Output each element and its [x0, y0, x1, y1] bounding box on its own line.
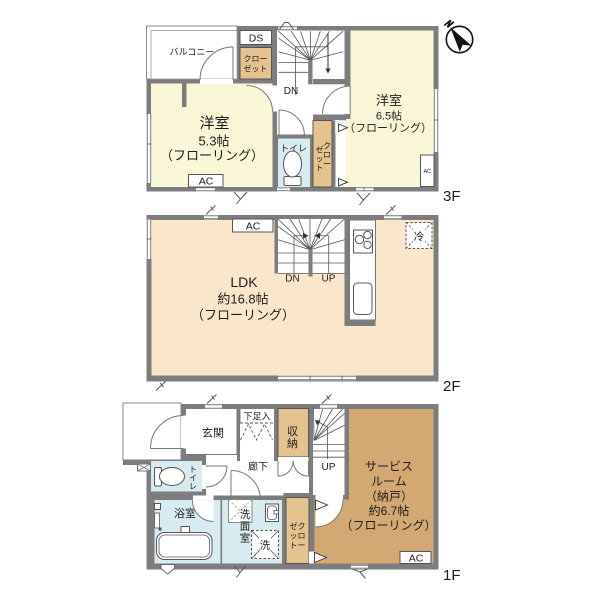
svg-text:ー: ー	[323, 160, 331, 169]
svg-text:AC: AC	[423, 169, 431, 175]
svg-text:バルコニー: バルコニー	[170, 47, 215, 57]
svg-text:ク: ク	[323, 142, 331, 151]
svg-text:AC: AC	[199, 176, 214, 188]
svg-text:ゼ: ゼ	[316, 145, 324, 155]
svg-text:収: 収	[287, 425, 298, 438]
svg-text:冷: 冷	[414, 230, 425, 243]
svg-text:玄関: 玄関	[202, 426, 224, 440]
svg-text:下足入: 下足入	[243, 412, 270, 422]
svg-text:6.5帖: 6.5帖	[376, 110, 402, 123]
svg-text:DN: DN	[284, 86, 298, 97]
svg-text:洗: 洗	[260, 540, 271, 552]
svg-text:DN: DN	[285, 274, 299, 285]
svg-text:AC: AC	[246, 221, 261, 233]
svg-text:LDK: LDK	[230, 274, 258, 290]
svg-text:洗: 洗	[240, 509, 251, 521]
svg-text:ト: ト	[290, 541, 298, 550]
svg-text:廊下: 廊下	[248, 460, 268, 473]
svg-text:1F: 1F	[443, 567, 461, 584]
svg-text:約6.7帖: 約6.7帖	[369, 503, 410, 518]
svg-text:ゼット: ゼット	[244, 64, 268, 74]
svg-text:クロー: クロー	[244, 55, 268, 64]
svg-text:（フローリング）: （フローリング）	[160, 148, 264, 163]
svg-text:（フローリング）: （フローリング）	[340, 519, 436, 533]
svg-text:（フローリング）: （フローリング）	[344, 121, 432, 135]
svg-text:納: 納	[287, 437, 298, 450]
svg-text:ロ: ロ	[298, 532, 306, 541]
svg-text:3F: 3F	[443, 188, 461, 205]
svg-text:UP: UP	[322, 274, 336, 285]
svg-text:室: 室	[240, 532, 251, 545]
svg-text:約16.8帖: 約16.8帖	[217, 292, 268, 307]
svg-text:UP: UP	[322, 462, 336, 473]
svg-text:2F: 2F	[443, 378, 461, 395]
svg-text:ク: ク	[298, 522, 306, 531]
svg-text:ッ: ッ	[290, 532, 298, 541]
svg-text:AC: AC	[409, 553, 424, 565]
svg-text:浴室: 浴室	[174, 506, 196, 520]
svg-text:ッ: ッ	[316, 155, 324, 164]
svg-text:面: 面	[240, 521, 251, 533]
svg-text:DS: DS	[249, 33, 264, 45]
svg-text:洋室: 洋室	[199, 115, 229, 132]
svg-text:ルーム: ルーム	[371, 475, 407, 489]
svg-text:サービス: サービス	[365, 460, 413, 474]
svg-text:（フローリング）: （フローリング）	[191, 308, 295, 323]
svg-text:ト: ト	[316, 164, 324, 173]
svg-text:ロ: ロ	[323, 151, 331, 160]
svg-text:ゼ: ゼ	[290, 521, 298, 531]
svg-text:ー: ー	[298, 541, 306, 550]
svg-text:洋室: 洋室	[376, 93, 402, 108]
svg-text:レ: レ	[189, 482, 197, 491]
svg-text:（納戸）: （納戸）	[365, 490, 413, 504]
svg-text:5.3帖: 5.3帖	[198, 134, 229, 149]
